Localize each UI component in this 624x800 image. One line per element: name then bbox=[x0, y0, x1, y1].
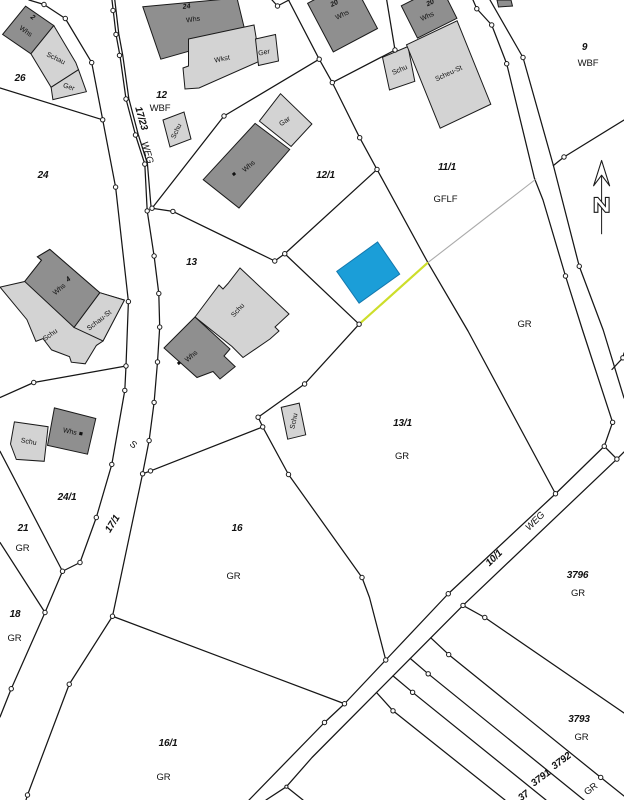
svg-text:16/1: 16/1 bbox=[159, 738, 178, 749]
svg-text:13/1: 13/1 bbox=[393, 418, 412, 429]
svg-text:16: 16 bbox=[232, 523, 243, 534]
svg-text:GR: GR bbox=[571, 588, 585, 599]
svg-text:24/1: 24/1 bbox=[57, 492, 77, 503]
svg-text:GR: GR bbox=[517, 319, 531, 330]
svg-text:GR: GR bbox=[15, 543, 29, 554]
svg-text:26: 26 bbox=[14, 73, 26, 84]
svg-text:GR: GR bbox=[156, 772, 170, 783]
svg-text:3796: 3796 bbox=[567, 570, 589, 581]
svg-text:WBF: WBF bbox=[150, 103, 171, 114]
svg-text:12/1: 12/1 bbox=[316, 170, 335, 181]
svg-text:GR: GR bbox=[395, 451, 409, 462]
svg-text:24: 24 bbox=[181, 3, 190, 11]
svg-text:18: 18 bbox=[10, 609, 21, 620]
svg-text:9: 9 bbox=[582, 42, 588, 53]
svg-text:GFLF: GFLF bbox=[434, 194, 458, 205]
svg-text:11/1: 11/1 bbox=[438, 162, 457, 173]
svg-text:GR: GR bbox=[7, 633, 21, 644]
svg-text:21: 21 bbox=[17, 523, 29, 534]
svg-text:GR: GR bbox=[574, 732, 588, 743]
svg-text:24: 24 bbox=[37, 170, 49, 181]
svg-text:GR: GR bbox=[226, 571, 240, 582]
svg-text:12: 12 bbox=[156, 90, 167, 101]
svg-text:3793: 3793 bbox=[568, 714, 590, 725]
svg-text:13: 13 bbox=[186, 257, 197, 268]
svg-text:WBF: WBF bbox=[578, 58, 599, 69]
